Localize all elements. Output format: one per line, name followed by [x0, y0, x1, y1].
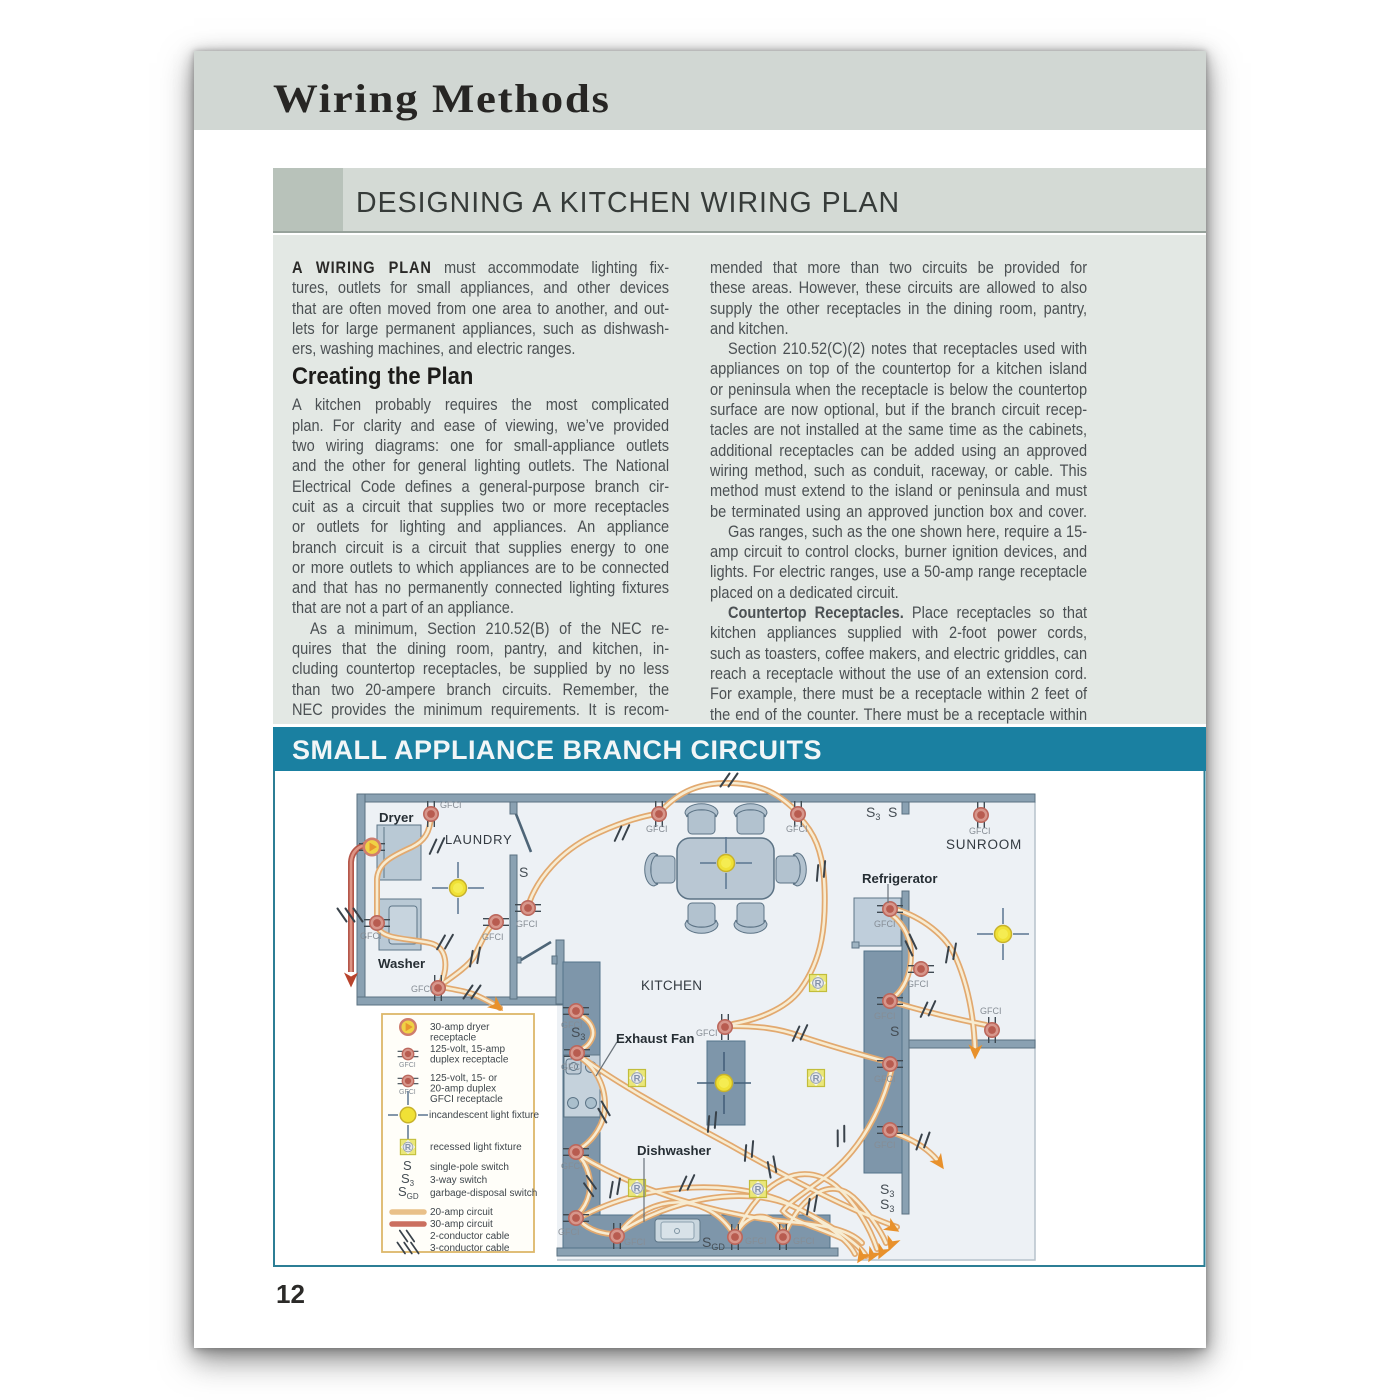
svg-text:125-volt, 15- or: 125-volt, 15- or: [430, 1073, 498, 1084]
svg-text:incandescent light fixture: incandescent light fixture: [429, 1110, 540, 1121]
svg-text:3-way switch: 3-way switch: [430, 1175, 487, 1186]
svg-text:Exhaust Fan: Exhaust Fan: [616, 1031, 694, 1046]
svg-text:GFCI: GFCI: [516, 919, 538, 929]
svg-text:GFCI: GFCI: [696, 1028, 718, 1038]
svg-text:Refrigerator: Refrigerator: [862, 871, 937, 886]
svg-text:SUNROOM: SUNROOM: [946, 837, 1022, 852]
svg-text:GFCI: GFCI: [969, 826, 991, 836]
svg-text:Washer: Washer: [378, 956, 425, 971]
svg-text:KITCHEN: KITCHEN: [641, 978, 702, 993]
svg-text:GFCI: GFCI: [482, 932, 504, 942]
svg-text:2-conductor cable: 2-conductor cable: [430, 1231, 510, 1242]
svg-text:single-pole switch: single-pole switch: [430, 1162, 509, 1173]
svg-text:GFCI receptacle: GFCI receptacle: [430, 1094, 503, 1105]
svg-text:GFCI: GFCI: [646, 824, 668, 834]
svg-text:GFCI: GFCI: [411, 984, 433, 994]
svg-text:receptacle: receptacle: [430, 1033, 477, 1044]
svg-text:GFCI: GFCI: [980, 1006, 1002, 1016]
svg-text:20-amp duplex: 20-amp duplex: [430, 1084, 496, 1095]
svg-text:Dryer: Dryer: [379, 810, 413, 825]
svg-text:GFCI: GFCI: [399, 1062, 416, 1069]
svg-text:GFCI: GFCI: [874, 1140, 896, 1150]
svg-text:GFCI: GFCI: [558, 1227, 580, 1237]
svg-text:S: S: [888, 804, 897, 820]
svg-text:3-conductor cable: 3-conductor cable: [430, 1243, 510, 1254]
svg-text:GFCI: GFCI: [874, 919, 896, 929]
svg-text:GFCI: GFCI: [874, 1011, 896, 1021]
svg-text:GFCI: GFCI: [786, 824, 808, 834]
svg-text:S: S: [519, 864, 528, 880]
svg-text:GFCI: GFCI: [440, 800, 462, 810]
svg-text:duplex receptacle: duplex receptacle: [430, 1055, 509, 1066]
svg-text:garbage-disposal switch: garbage-disposal switch: [430, 1188, 537, 1199]
svg-text:GFCI: GFCI: [561, 1161, 583, 1171]
svg-text:125-volt, 15-amp: 125-volt, 15-amp: [430, 1044, 505, 1055]
svg-text:20-amp circuit: 20-amp circuit: [430, 1207, 493, 1218]
svg-text:30-amp dryer: 30-amp dryer: [430, 1022, 490, 1033]
svg-text:GFCI: GFCI: [360, 931, 382, 941]
svg-text:Dishwasher: Dishwasher: [637, 1143, 711, 1158]
svg-text:GFCI: GFCI: [907, 979, 929, 989]
svg-text:GFCI: GFCI: [874, 1074, 896, 1084]
svg-text:GFCI: GFCI: [624, 1237, 646, 1247]
svg-text:recessed light fixture: recessed light fixture: [430, 1142, 522, 1153]
svg-text:GFCI: GFCI: [561, 1062, 583, 1072]
svg-text:GFCI: GFCI: [793, 1236, 815, 1246]
svg-text:S: S: [890, 1023, 899, 1039]
svg-text:GFCI: GFCI: [745, 1236, 767, 1246]
svg-text:30-amp circuit: 30-amp circuit: [430, 1219, 493, 1230]
svg-text:LAUNDRY: LAUNDRY: [445, 832, 513, 847]
